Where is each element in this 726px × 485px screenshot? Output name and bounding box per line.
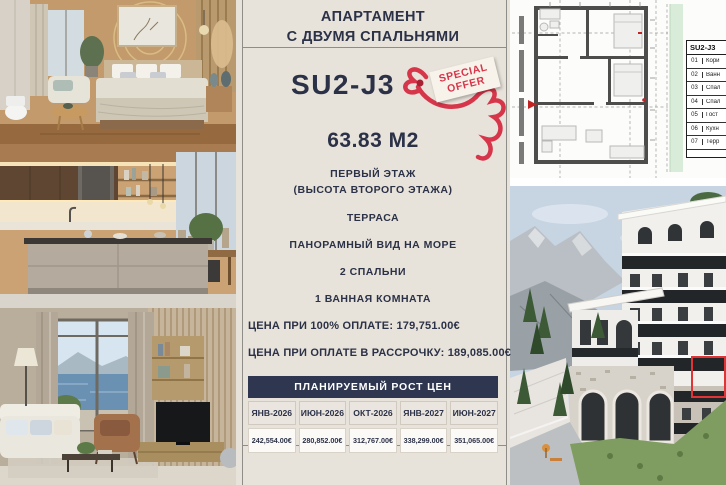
legend-row: 07 Терр [687, 136, 726, 150]
legend-row: 02 Ванн [687, 69, 726, 83]
growth-value-cell: 312,767.00€ [349, 428, 397, 453]
growth-col-header: ИЮН-2027 [450, 401, 498, 425]
title-line-1: АПАРТАМЕНТ [236, 8, 510, 28]
kitchen-photo [0, 144, 236, 308]
growth-value-cell: 280,852.00€ [299, 428, 347, 453]
floor-plan-legend: SU2-J3 01 Кори 02 Ванн 03 Спал 04 Спал [686, 40, 726, 158]
bedroom-photo [0, 0, 236, 144]
unit-row: SU2-J3 SPECIAL OFFER [236, 57, 510, 129]
feature-bathrooms: 1 ВАННАЯ КОМНАТА [236, 291, 510, 307]
legend-row: 05 Гост [687, 109, 726, 123]
growth-value-cell: 338,299.00€ [400, 428, 448, 453]
growth-col-header: ОКТ-2026 [349, 401, 397, 425]
growth-col-header: ИЮН-2026 [299, 401, 347, 425]
right-column: SU2-J3 01 Кори 02 Ванн 03 Спал 04 Спал [510, 0, 726, 485]
price-full-value: 179,751.00€ [396, 320, 459, 332]
growth-value-cell: 242,554.00€ [248, 428, 296, 453]
growth-value-cell: 351,065.00€ [450, 428, 498, 453]
card-title-divider [242, 47, 507, 48]
legend-row: 03 Спал [687, 82, 726, 96]
legend-row: 04 Спал [687, 96, 726, 110]
legend-row: 01 Кори [687, 55, 726, 69]
floor-plan: SU2-J3 01 Кори 02 Ванн 03 Спал 04 Спал [510, 0, 726, 186]
growth-table-title: ПЛАНИРУЕМЫЙ РОСТ ЦЕН [248, 376, 498, 398]
card-title: АПАРТАМЕНТ С ДВУМЯ СПАЛЬНЯМИ [236, 0, 510, 47]
feature-terrace: ТЕРРАСА [236, 210, 510, 226]
building-render-illustration [510, 186, 726, 485]
building-render [510, 186, 726, 485]
price-full-label: ЦЕНА ПРИ 100% ОПЛАТЕ: [248, 320, 393, 332]
growth-col-header: ЯНВ-2026 [248, 401, 296, 425]
kitchen-illustration [0, 144, 236, 308]
apartment-flyer: АПАРТАМЕНТ С ДВУМЯ СПАЛЬНЯМИ SU2-J3 SPEC… [0, 0, 726, 485]
growth-table-grid: ЯНВ-2026 ИЮН-2026 ОКТ-2026 ЯНВ-2027 ИЮН-… [248, 401, 498, 453]
info-card: АПАРТАМЕНТ С ДВУМЯ СПАЛЬНЯМИ SU2-J3 SPEC… [236, 0, 510, 485]
price-full-line: ЦЕНА ПРИ 100% ОПЛАТЕ: 179,751.00€ [248, 320, 498, 332]
price-growth-table: ПЛАНИРУЕМЫЙ РОСТ ЦЕН ЯНВ-2026 ИЮН-2026 О… [248, 376, 498, 453]
price-block: ЦЕНА ПРИ 100% ОПЛАТЕ: 179,751.00€ ЦЕНА П… [248, 320, 498, 374]
price-installment-value: 189,085.00€ [448, 347, 511, 359]
growth-col-header: ЯНВ-2027 [400, 401, 448, 425]
price-installment-line: ЦЕНА ПРИ ОПЛАТЕ В РАССРОЧКУ: 189,085.00€ [248, 347, 498, 359]
living-room-photo [0, 308, 236, 485]
legend-row: 06 Кухн [687, 123, 726, 137]
feature-bedrooms: 2 СПАЛЬНИ [236, 264, 510, 280]
title-line-2: С ДВУМЯ СПАЛЬНЯМИ [236, 28, 510, 48]
price-installment-label: ЦЕНА ПРИ ОПЛАТЕ В РАССРОЧКУ: [248, 347, 444, 359]
feature-sea-view: ПАНОРАМНЫЙ ВИД НА МОРЕ [236, 237, 510, 253]
legend-title: SU2-J3 [687, 41, 726, 55]
feature-list: ПЕРВЫЙ ЭТАЖ (ВЫСОТА ВТОРОГО ЭТАЖА) ТЕРРА… [236, 166, 510, 308]
living-room-illustration [0, 308, 236, 485]
legend-footer [687, 150, 726, 157]
photo-column [0, 0, 236, 485]
bedroom-illustration [0, 0, 236, 144]
